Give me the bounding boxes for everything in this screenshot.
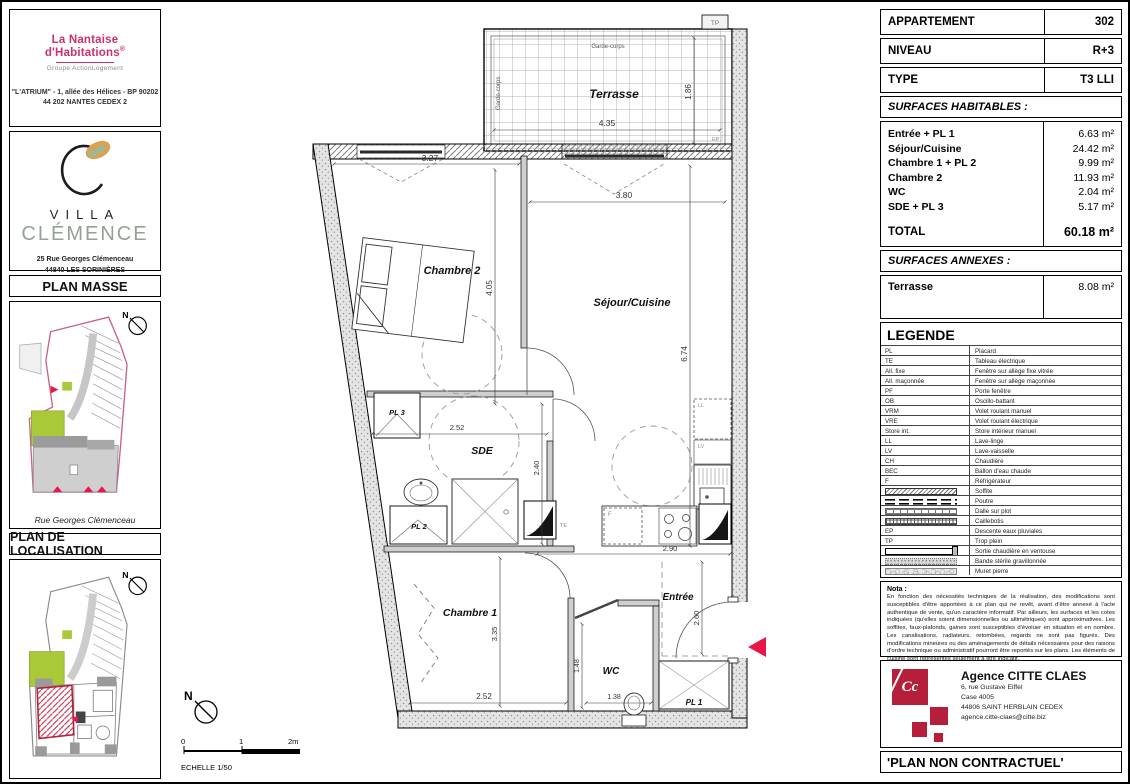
legend-rows: PL Placard TE Tableau électrique All. fi… — [881, 345, 1121, 575]
legend-label: Porte fenêtre — [969, 386, 1121, 395]
legend-row: Muret pierre — [881, 565, 1121, 575]
legend-key: BEC — [881, 466, 969, 475]
terrasse-label: Terrasse — [589, 87, 639, 101]
legend-label: Tableau électrique — [969, 356, 1121, 365]
legend-row: F Réfrigérateur — [881, 475, 1121, 485]
legend-label: Caillebotis — [969, 516, 1121, 525]
entrance-opening — [731, 602, 749, 658]
plan-masse-title: PLAN MASSE — [9, 275, 161, 297]
surface-row: Chambre 2 11.93 m² — [881, 171, 1121, 186]
closet-pl3: PL 3 — [374, 393, 420, 438]
svg-text:3.35: 3.35 — [490, 627, 499, 642]
svg-text:3.80: 3.80 — [616, 190, 633, 200]
legend-label: Muret pierre — [969, 566, 1121, 575]
header-value: R+3 — [1044, 39, 1121, 63]
north-arrow: N — [122, 570, 146, 594]
legend-label: Réfrigérateur — [969, 476, 1121, 485]
legend-row: All. fixe Fenêtre sur allège fixe vitrée — [881, 365, 1121, 375]
legend-row: CH Chaudière — [881, 455, 1121, 465]
header-rows: APPARTEMENT 302 NIVEAU R+3 TYPE T3 LLI — [880, 9, 1122, 96]
agency-contact: Agence CITTE CLAES 6, rue Gustave Eiffel… — [953, 667, 1086, 745]
legend-key: LV — [881, 446, 969, 455]
legend-label: Fenêtre sur allège fixe vitrée — [969, 366, 1121, 375]
svg-text:3.27: 3.27 — [422, 153, 439, 163]
legend-row: Soffite — [881, 485, 1121, 495]
legend-label: Lave-linge — [969, 436, 1121, 445]
pl2-label: PL 2 — [411, 522, 428, 531]
ll-label: LL — [698, 403, 704, 409]
garde-corps-label-top: Garde-corps — [591, 44, 624, 50]
legend-row: LV Lave-vaisselle — [881, 445, 1121, 455]
header-row: APPARTEMENT 302 — [880, 9, 1122, 35]
pillow — [357, 286, 387, 327]
legend-title: LEGENDE — [881, 323, 1121, 345]
legend-key: TE — [881, 356, 969, 365]
building-dark-strip — [33, 436, 87, 448]
clemence-word: CLÉMENCE — [10, 223, 160, 246]
legend-row: Bande stérile gravillonnée — [881, 555, 1121, 565]
dimension-label: 1.86 — [684, 84, 693, 100]
tp-label: TP — [711, 20, 719, 27]
garde-corps-label-left: Garde-corps — [496, 77, 502, 110]
brand-rule — [56, 62, 114, 63]
svg-text:2.60: 2.60 — [692, 611, 701, 626]
developer-block: La Nantaise d'Habitations® Groupe Action… — [9, 9, 161, 127]
legend-row: TP Trop plein — [881, 535, 1121, 545]
legend-key: LL — [881, 436, 969, 445]
info-panel: APPARTEMENT 302 NIVEAU R+3 TYPE T3 LLI S… — [880, 9, 1122, 779]
svg-text:2.52: 2.52 — [450, 423, 465, 432]
svg-text:0: 0 — [181, 737, 185, 746]
surface-value: 11.93 m² — [1044, 172, 1121, 184]
legend-key: PF — [881, 386, 969, 395]
legend-key — [881, 566, 969, 575]
bed — [352, 238, 474, 343]
legend-row: EP Descente eaux pluviales — [881, 525, 1121, 535]
legend-row: OB Oscillo-battant — [881, 395, 1121, 405]
legend-key: PL — [881, 346, 969, 355]
window-chambre2 — [357, 145, 445, 182]
legend-label: Sortie chaudière en ventouse — [969, 546, 1121, 555]
scale-label: ECHELLE 1/50 — [181, 763, 232, 772]
legend-key: TP — [881, 536, 969, 545]
wc-door — [575, 600, 618, 618]
legend-row: Store int. Store intérieur manuel — [881, 425, 1121, 435]
kitchen-sink — [694, 465, 731, 509]
agency-email: agence.citte-claes@citte.biz — [961, 713, 1086, 723]
svg-text:4.05: 4.05 — [485, 280, 494, 296]
svg-text:1.38: 1.38 — [607, 694, 621, 701]
legend-key — [881, 546, 969, 555]
green-patch-small — [62, 630, 72, 639]
legend-row: Sortie chaudière en ventouse — [881, 545, 1121, 555]
surface-value: 2.04 m² — [1044, 186, 1121, 198]
surface-label: SDE + PL 3 — [881, 201, 1044, 213]
legend-row: PF Porte fenêtre — [881, 385, 1121, 395]
closet-pl2: PL 2 — [390, 506, 447, 544]
legend-row: TE Tableau électrique — [881, 355, 1121, 365]
site-plan-drawing: N — [12, 304, 157, 510]
legend-row: VRM Volet roulant manuel — [881, 405, 1121, 415]
header-value: T3 LLI — [1044, 68, 1121, 92]
svg-text:N: N — [122, 310, 128, 320]
villa-word: VILLA — [10, 207, 160, 222]
header-row: TYPE T3 LLI — [880, 67, 1122, 93]
legend-key: EP — [881, 526, 969, 535]
legend-label: Dalle sur plot — [969, 506, 1121, 515]
agency-logo: Cc — [889, 667, 953, 743]
plan-sheet: La Nantaise d'Habitations® Groupe Action… — [0, 0, 1130, 784]
tableau-electrique: TE — [524, 501, 567, 539]
legend-row: Dalle sur plot — [881, 505, 1121, 515]
scale-bar: 0 1 2m ECHELLE 1/50 — [181, 737, 300, 772]
kitchen: LL LV — [602, 399, 731, 546]
lv-label: LV — [698, 444, 705, 450]
nota-title: Nota : — [887, 586, 1115, 593]
annexe-value: 8.08 m² — [1044, 281, 1121, 318]
surface-row: Chambre 1 + PL 2 9.99 m² — [881, 156, 1121, 171]
legend-label: Bande stérile gravillonnée — [969, 556, 1121, 565]
surfaces-rows: Entrée + PL 1 6.63 m² Séjour/Cuisine 24.… — [881, 127, 1121, 214]
north-arrow: N — [122, 310, 146, 334]
header-value: 302 — [1044, 10, 1121, 34]
surfaces-habitables-table: Entrée + PL 1 6.63 m² Séjour/Cuisine 24.… — [880, 121, 1122, 247]
closet-pl1: PL 1 — [659, 661, 729, 709]
header-label: TYPE — [881, 74, 1044, 86]
legend-key: F — [881, 476, 969, 485]
surface-value: 24.42 m² — [1044, 143, 1121, 155]
legend-label: Volet roulant électrique — [969, 416, 1121, 425]
wc-label: WC — [603, 666, 620, 677]
legend-key: Store int. — [881, 426, 969, 435]
developer-group: Groupe ActionLogement — [10, 65, 160, 72]
legend-label: Placard — [969, 346, 1121, 355]
legend-label: Oscillo-battant — [969, 396, 1121, 405]
total-value: 60.18 m² — [1044, 225, 1121, 239]
header-row: NIVEAU R+3 — [880, 38, 1122, 64]
legend-label: Store intérieur manuel — [969, 426, 1121, 435]
agency-block: Cc Agence CITTE CLAES 6, rue Gustave Eif… — [880, 660, 1122, 748]
toilet — [622, 693, 646, 726]
svg-text:N: N — [122, 570, 128, 580]
header-label: APPARTEMENT — [881, 16, 1044, 28]
floor-plan: TP Garde-corps Garde-corps Terrasse 4.35… — [162, 6, 882, 782]
surface-row: SDE + PL 3 5.17 m² — [881, 200, 1121, 215]
legend-key: OB — [881, 396, 969, 405]
legend: LEGENDE PL Placard TE Tableau électrique… — [880, 322, 1122, 578]
residence-block: VILLA CLÉMENCE 25 Rue Georges Clémenceau… — [9, 131, 161, 271]
surface-label: Chambre 2 — [881, 172, 1044, 184]
dimension-label: 4.35 — [599, 118, 616, 128]
legend-key: CH — [881, 456, 969, 465]
legend-label: Chaudière — [969, 456, 1121, 465]
legend-key: All. fixe — [881, 366, 969, 375]
plan-localisation-map: N — [9, 559, 161, 779]
agency-logo-text: Cc — [902, 679, 919, 696]
f-label: F — [608, 512, 612, 518]
plan-masse-map: N Rue Georges Clémenceau — [9, 301, 161, 529]
total-row: TOTAL 60.18 m² — [881, 222, 1121, 242]
svg-text:2.52: 2.52 — [476, 692, 492, 701]
legend-row: Caillebotis — [881, 515, 1121, 525]
surfaces-annexes-title: SURFACES ANNEXES : — [880, 250, 1122, 272]
sde-label: SDE — [471, 445, 494, 457]
surface-value: 5.17 m² — [1044, 201, 1121, 213]
legend-label: Volet roulant manuel — [969, 406, 1121, 415]
localisation-drawing: N — [12, 562, 157, 774]
porte-fenetre-sejour — [562, 144, 667, 194]
entrance-arrow — [748, 637, 766, 657]
agency-name: Agence CITTE CLAES — [961, 669, 1086, 683]
wardrobe-outline — [414, 584, 438, 684]
legend-row: Poutre — [881, 495, 1121, 505]
surface-label: Entrée + PL 1 — [881, 128, 1044, 140]
chambre2-label: Chambre 2 — [424, 265, 481, 277]
legend-row: All. maçonnée Fenêtre sur allège maçonné… — [881, 375, 1121, 385]
entree-guides — [662, 562, 728, 656]
ep-label: EP — [712, 137, 720, 143]
chambre1-label: Chambre 1 — [443, 607, 497, 619]
annexe-label: Terrasse — [881, 281, 1044, 318]
shower — [452, 479, 518, 544]
legend-key — [881, 486, 969, 495]
surface-label: Chambre 1 + PL 2 — [881, 157, 1044, 169]
soffite-duct — [699, 504, 731, 544]
non-contractual-notice: 'PLAN NON CONTRACTUEL' — [880, 751, 1122, 773]
developer-brand: La Nantaise d'Habitations® — [10, 34, 160, 59]
floor-plan-drawing: TP Garde-corps Garde-corps Terrasse 4.35… — [162, 6, 882, 782]
legend-label: Lave-vaisselle — [969, 446, 1121, 455]
surface-value: 6.63 m² — [1044, 128, 1121, 140]
sidebar: La Nantaise d'Habitations® Groupe Action… — [9, 9, 161, 779]
green-patch-small — [62, 382, 72, 391]
legend-row: VRE Volet roulant électrique — [881, 415, 1121, 425]
neighbor-building — [20, 343, 41, 374]
legend-key: All. maçonnée — [881, 376, 969, 385]
residence-address: 25 Rue Georges Clémenceau 44840 LES SORI… — [10, 254, 160, 276]
terrace: TP Garde-corps Garde-corps Terrasse 4.35… — [484, 15, 732, 151]
svg-text:N: N — [184, 689, 193, 703]
surfaces-habitables-title: SURFACES HABITABLES : — [880, 96, 1122, 118]
svg-text:6.74: 6.74 — [680, 346, 689, 362]
north-arrow: N — [184, 689, 217, 723]
total-label: TOTAL — [881, 226, 1044, 238]
svg-text:2.90: 2.90 — [663, 544, 678, 553]
surface-row: Séjour/Cuisine 24.42 m² — [881, 142, 1121, 157]
pl3-label: PL 3 — [389, 408, 406, 417]
legend-key — [881, 516, 969, 525]
legend-label: Fenêtre sur allège maçonnée — [969, 376, 1121, 385]
street-caption: Rue Georges Clémenceau — [10, 515, 160, 525]
surfaces-annexes-table: Terrasse 8.08 m² — [880, 275, 1122, 319]
legend-row: BEC Ballon d'eau chaude — [881, 465, 1121, 475]
legend-label: Descente eaux pluviales — [969, 526, 1121, 535]
entree-label: Entrée — [662, 592, 694, 603]
legend-key — [881, 556, 969, 565]
surface-value: 9.99 m² — [1044, 157, 1121, 169]
legend-label: Ballon d'eau chaude — [969, 466, 1121, 475]
registered-mark: ® — [120, 46, 125, 53]
legend-key: VRM — [881, 406, 969, 415]
nota: Nota : En fonction des nécessités techni… — [880, 581, 1122, 657]
legend-key — [881, 506, 969, 515]
legend-label: Poutre — [969, 496, 1121, 505]
legend-label: Soffite — [969, 486, 1121, 495]
legend-label: Trop plein — [969, 536, 1121, 545]
plan-localisation-title: PLAN DE LOCALISATION — [9, 533, 161, 555]
header-label: NIVEAU — [881, 45, 1044, 57]
highlighted-unit — [37, 685, 74, 738]
te-label: TE — [560, 523, 567, 529]
surface-label: Séjour/Cuisine — [881, 143, 1044, 155]
stair-core — [70, 465, 78, 475]
developer-address: "L'ATRIUM" - 1, allée des Hélices - BP 9… — [10, 88, 160, 109]
surface-label: WC — [881, 186, 1044, 198]
legend-row: PL Placard — [881, 345, 1121, 355]
legend-row: LL Lave-linge — [881, 435, 1121, 445]
pl1-label: PL 1 — [686, 698, 703, 707]
pillow — [362, 244, 392, 285]
legend-key: VRE — [881, 416, 969, 425]
svg-text:2.40: 2.40 — [532, 461, 541, 476]
villa-clemence-logo — [50, 138, 120, 200]
svg-text:2m: 2m — [288, 737, 298, 746]
building-dark-strip2 — [87, 440, 114, 450]
sejour-label: Séjour/Cuisine — [593, 297, 670, 309]
nota-text: En fonction des nécessités techniques de… — [887, 594, 1115, 664]
svg-text:1: 1 — [239, 737, 243, 746]
surface-row: Entrée + PL 1 6.63 m² — [881, 127, 1121, 142]
legend-key — [881, 496, 969, 505]
washbasin — [404, 479, 438, 505]
svg-text:1.48: 1.48 — [574, 659, 581, 673]
surface-row: WC 2.04 m² — [881, 185, 1121, 200]
